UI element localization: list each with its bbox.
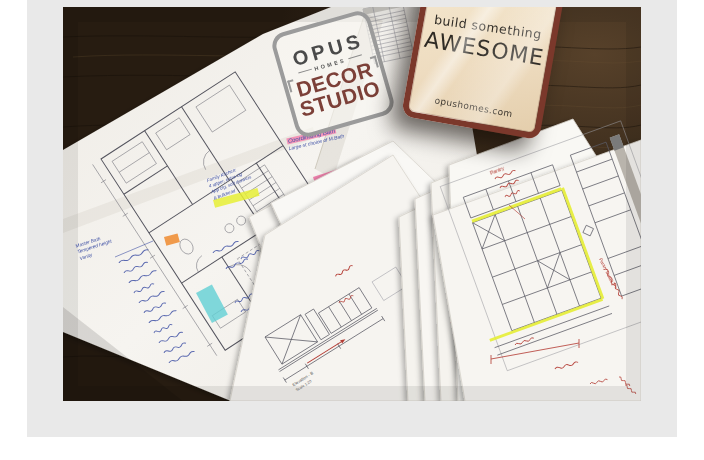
awesome-sign: build something AWESOME opushomes.com (401, 7, 565, 140)
photo: Elevation - B Scale 1:20 (63, 7, 641, 401)
sign-website: opushomes.com (434, 95, 514, 119)
